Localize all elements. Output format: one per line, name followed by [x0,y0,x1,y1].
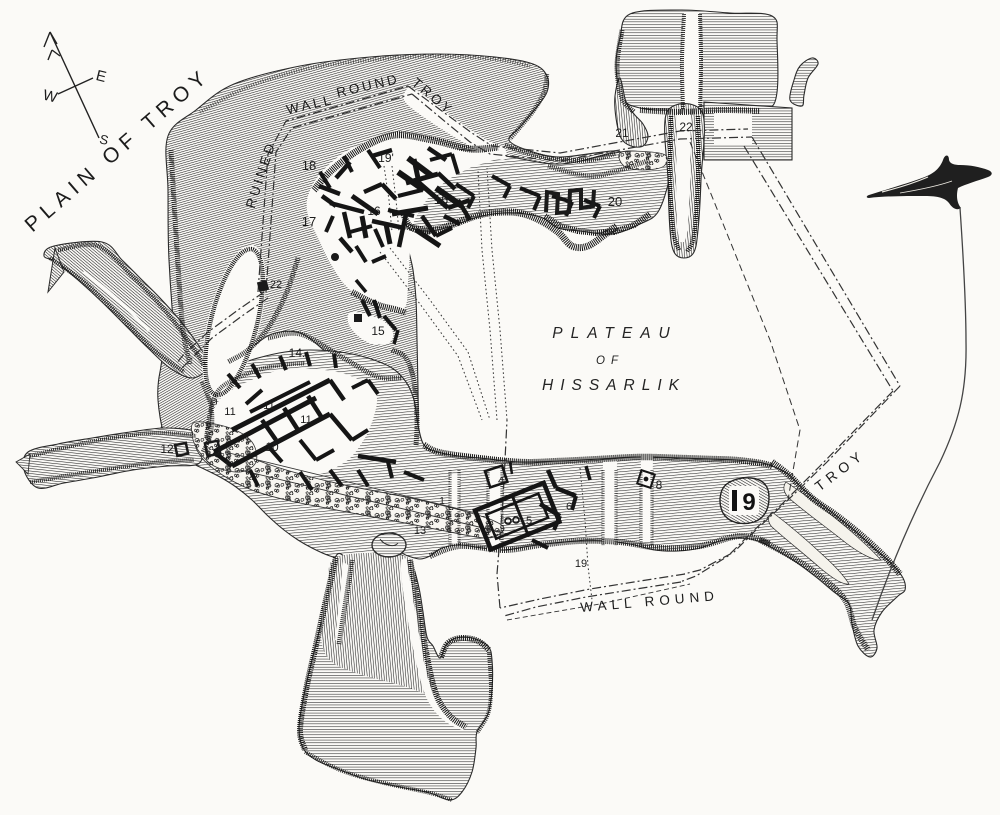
svg-text:16: 16 [434,192,448,207]
svg-text:11: 11 [224,406,235,418]
svg-text:4: 4 [498,475,504,487]
svg-text:9: 9 [742,489,755,516]
svg-text:18: 18 [302,158,316,173]
svg-text:17: 17 [302,214,316,229]
svg-text:OF: OF [596,355,624,367]
svg-text:21: 21 [615,126,629,140]
svg-text:HISSARLIK: HISSARLIK [542,377,686,394]
svg-text:22: 22 [679,120,693,134]
svg-text:15: 15 [371,324,385,338]
svg-text:12: 12 [160,442,174,456]
svg-text:22: 22 [270,279,282,291]
svg-text:1: 1 [439,496,445,507]
svg-text:11: 11 [263,400,274,412]
svg-text:19: 19 [575,558,587,570]
svg-text:8: 8 [656,478,663,492]
svg-text:PLATEAU: PLATEAU [552,325,678,342]
svg-text:14.: 14. [289,346,306,360]
svg-text:19': 19' [378,151,394,165]
svg-text:10: 10 [265,440,279,454]
svg-text:5: 5 [526,515,532,527]
svg-text:16: 16 [367,204,381,218]
svg-text:20: 20 [608,194,622,209]
svg-text:2: 2 [225,455,231,467]
svg-text:6: 6 [566,501,572,513]
svg-text:11: 11 [300,414,311,426]
svg-text:13: 13 [414,525,426,537]
